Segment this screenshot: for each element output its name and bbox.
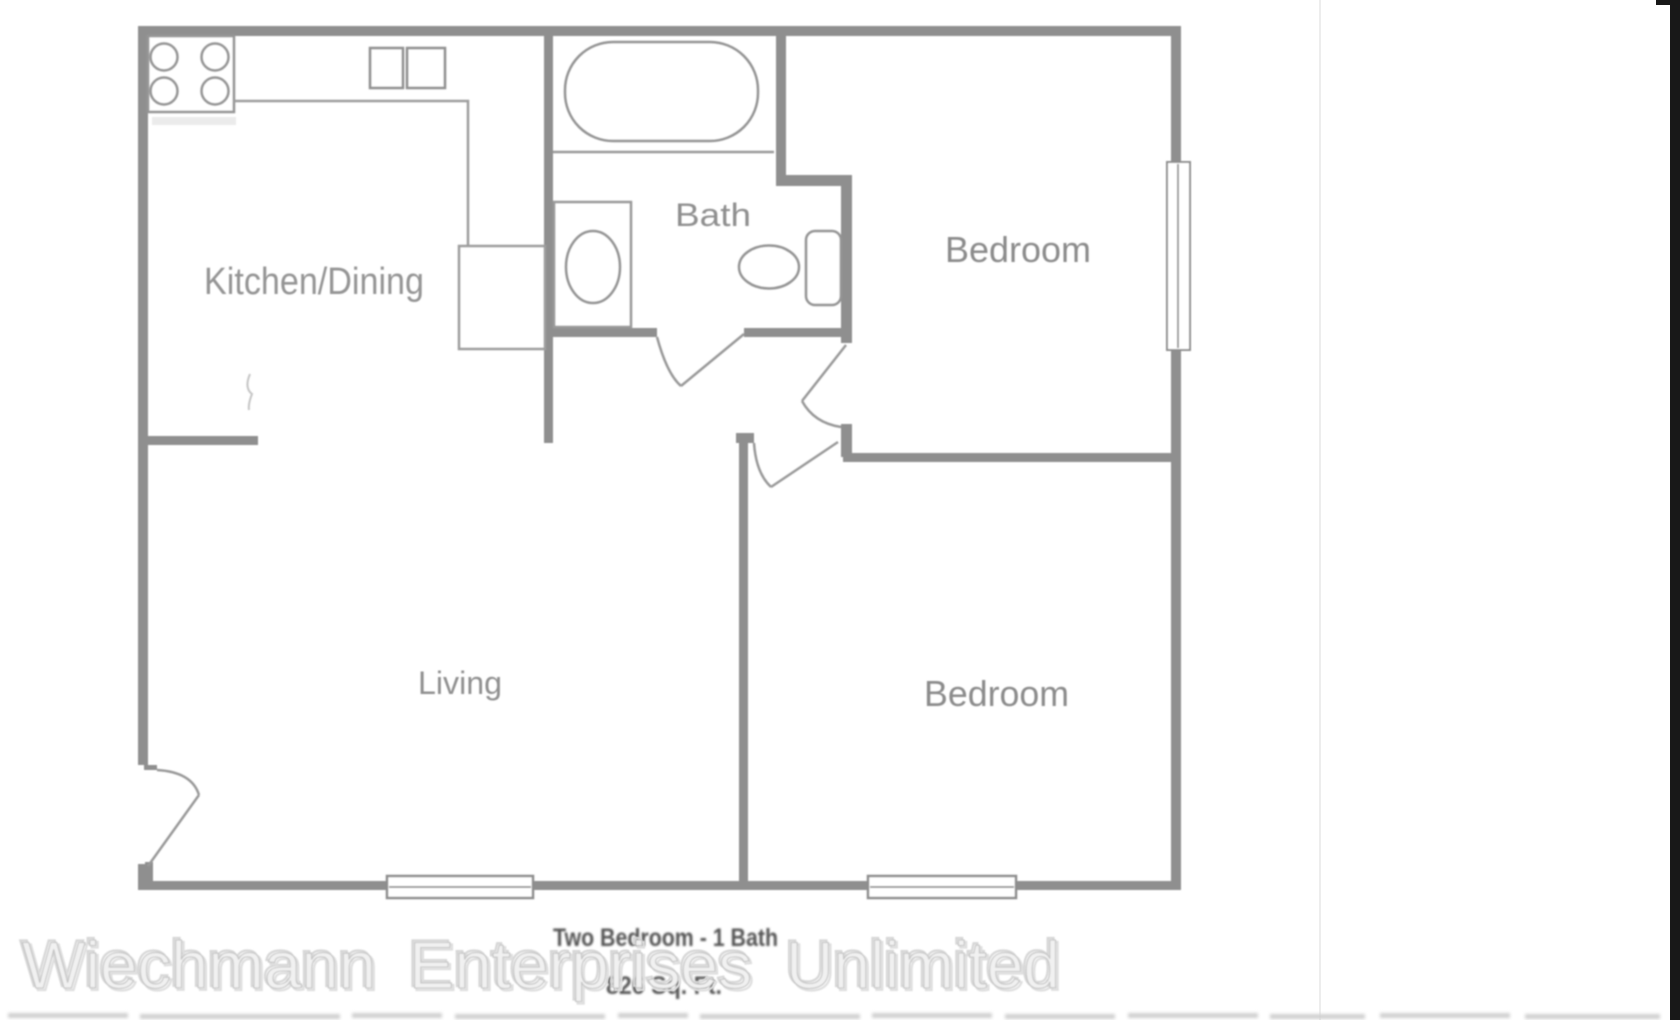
svg-text:Enterprises: Enterprises [409,928,752,1002]
svg-text:Kitchen/Dining: Kitchen/Dining [204,261,424,303]
svg-text:Living: Living [418,665,502,701]
svg-text:Bedroom: Bedroom [924,673,1069,714]
svg-text:Bath: Bath [675,197,751,233]
svg-text:Bedroom: Bedroom [945,229,1091,270]
svg-text:Unlimited: Unlimited [786,928,1060,1002]
svg-text:Wiechmann: Wiechmann [22,928,376,1002]
